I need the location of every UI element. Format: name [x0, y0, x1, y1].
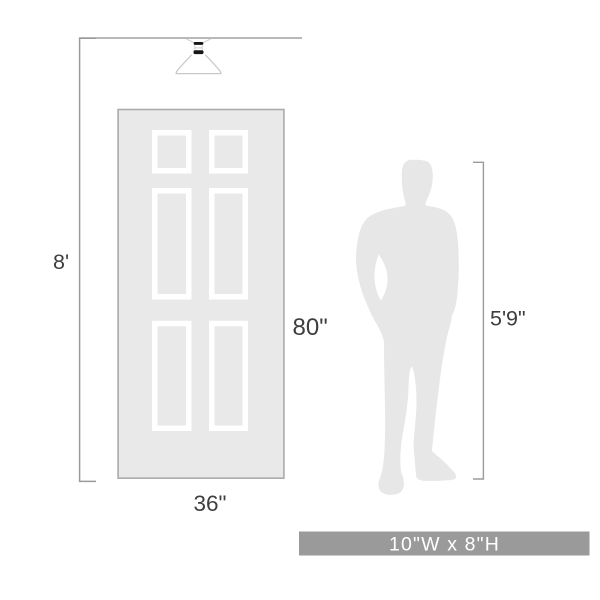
svg-text:5'9": 5'9": [490, 307, 526, 331]
svg-text:10"W x 8"H: 10"W x 8"H: [389, 534, 500, 556]
svg-text:80": 80": [293, 314, 328, 341]
svg-text:36": 36": [194, 491, 227, 516]
svg-text:8': 8': [53, 250, 69, 274]
